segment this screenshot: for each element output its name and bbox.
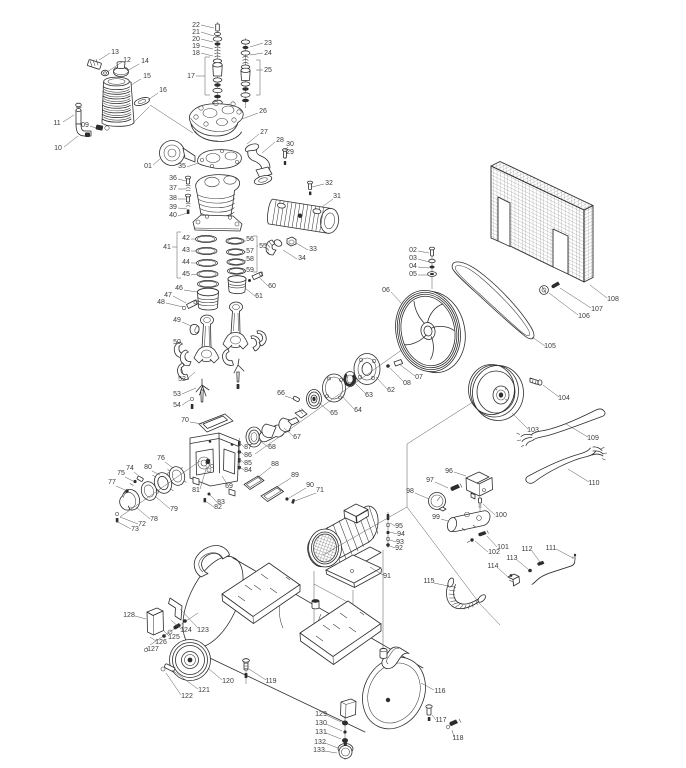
svg-text:19: 19 xyxy=(192,43,200,50)
svg-text:126: 126 xyxy=(155,639,167,646)
svg-text:94: 94 xyxy=(397,531,405,538)
svg-text:42: 42 xyxy=(182,235,190,242)
svg-text:124: 124 xyxy=(180,627,192,634)
svg-text:04: 04 xyxy=(409,263,417,270)
svg-text:78: 78 xyxy=(150,516,158,523)
svg-text:70: 70 xyxy=(181,417,189,424)
svg-text:92: 92 xyxy=(395,545,403,552)
svg-text:24: 24 xyxy=(264,50,272,57)
svg-text:29: 29 xyxy=(286,149,294,156)
svg-text:56: 56 xyxy=(246,236,254,243)
svg-text:66: 66 xyxy=(277,390,285,397)
svg-text:82: 82 xyxy=(214,504,222,511)
svg-text:128: 128 xyxy=(123,612,135,619)
svg-text:49: 49 xyxy=(173,317,181,324)
svg-text:121: 121 xyxy=(198,687,210,694)
svg-text:80: 80 xyxy=(144,464,152,471)
svg-text:60: 60 xyxy=(268,283,276,290)
svg-text:65: 65 xyxy=(330,410,338,417)
svg-text:40: 40 xyxy=(169,212,177,219)
svg-text:47: 47 xyxy=(164,292,172,299)
svg-text:28: 28 xyxy=(276,137,284,144)
svg-text:48: 48 xyxy=(157,299,165,306)
svg-text:44: 44 xyxy=(182,259,190,266)
svg-text:91: 91 xyxy=(383,573,391,580)
svg-text:31: 31 xyxy=(333,193,341,200)
svg-text:07: 07 xyxy=(415,374,423,381)
svg-text:34: 34 xyxy=(298,255,306,262)
svg-text:67: 67 xyxy=(293,434,301,441)
svg-text:57: 57 xyxy=(246,248,254,255)
svg-text:03: 03 xyxy=(409,255,417,262)
svg-text:27: 27 xyxy=(260,129,268,136)
svg-text:86: 86 xyxy=(244,452,252,459)
svg-text:68: 68 xyxy=(268,444,276,451)
svg-text:119: 119 xyxy=(265,678,276,685)
svg-text:103: 103 xyxy=(527,427,539,434)
svg-text:120: 120 xyxy=(222,678,234,685)
svg-text:22: 22 xyxy=(192,22,200,29)
svg-text:123: 123 xyxy=(197,627,209,634)
svg-text:129: 129 xyxy=(315,711,327,718)
svg-text:133: 133 xyxy=(313,747,325,754)
svg-text:52: 52 xyxy=(178,376,186,383)
svg-text:104: 104 xyxy=(558,395,570,402)
svg-text:43: 43 xyxy=(182,247,190,254)
svg-text:23: 23 xyxy=(264,40,272,47)
svg-text:55: 55 xyxy=(259,243,267,250)
svg-text:69: 69 xyxy=(225,483,233,490)
svg-text:99: 99 xyxy=(432,514,440,521)
svg-text:131: 131 xyxy=(315,729,327,736)
svg-text:98: 98 xyxy=(406,488,414,495)
svg-text:36: 36 xyxy=(169,175,177,182)
svg-text:95: 95 xyxy=(395,523,403,530)
svg-text:110: 110 xyxy=(588,480,599,487)
svg-text:71: 71 xyxy=(316,487,324,494)
svg-text:05: 05 xyxy=(409,271,417,278)
svg-text:01: 01 xyxy=(144,163,152,170)
svg-text:35: 35 xyxy=(178,163,186,170)
svg-text:109: 109 xyxy=(587,435,599,442)
svg-text:72: 72 xyxy=(138,521,146,528)
svg-text:77: 77 xyxy=(108,479,116,486)
svg-text:45: 45 xyxy=(182,271,190,278)
svg-text:58: 58 xyxy=(246,256,254,263)
svg-text:15: 15 xyxy=(143,73,151,80)
svg-text:75: 75 xyxy=(117,470,125,477)
svg-text:111: 111 xyxy=(546,545,557,552)
svg-text:97: 97 xyxy=(426,477,434,484)
svg-text:74: 74 xyxy=(126,465,134,472)
svg-text:85: 85 xyxy=(244,460,252,467)
svg-text:06: 06 xyxy=(382,287,390,294)
svg-text:79: 79 xyxy=(170,506,178,513)
svg-text:107: 107 xyxy=(591,306,603,313)
svg-text:09: 09 xyxy=(81,122,89,129)
svg-text:26: 26 xyxy=(259,108,267,115)
svg-text:106: 106 xyxy=(578,313,590,320)
svg-text:11: 11 xyxy=(53,120,60,127)
svg-text:16: 16 xyxy=(159,87,167,94)
svg-text:112: 112 xyxy=(521,546,532,553)
svg-text:12: 12 xyxy=(123,57,131,64)
svg-text:18: 18 xyxy=(192,50,200,57)
svg-text:127: 127 xyxy=(147,646,159,653)
svg-text:63: 63 xyxy=(365,392,373,399)
svg-text:116: 116 xyxy=(434,688,445,695)
svg-text:88: 88 xyxy=(271,461,279,468)
svg-text:122: 122 xyxy=(181,693,193,700)
svg-text:73: 73 xyxy=(131,526,139,533)
svg-text:20: 20 xyxy=(192,36,200,43)
svg-text:13: 13 xyxy=(111,49,119,56)
svg-text:87: 87 xyxy=(244,444,252,451)
svg-text:08: 08 xyxy=(403,380,411,387)
svg-text:100: 100 xyxy=(495,512,507,519)
svg-text:14: 14 xyxy=(141,58,149,65)
svg-text:114: 114 xyxy=(487,563,498,570)
svg-text:115: 115 xyxy=(423,578,434,585)
svg-text:64: 64 xyxy=(354,407,362,414)
svg-text:84: 84 xyxy=(244,467,252,474)
svg-text:105: 105 xyxy=(544,343,556,350)
svg-text:96: 96 xyxy=(445,468,453,475)
svg-text:17: 17 xyxy=(187,73,195,80)
svg-text:41: 41 xyxy=(163,244,171,251)
svg-text:81: 81 xyxy=(192,487,200,494)
svg-text:54: 54 xyxy=(173,402,181,409)
svg-text:61: 61 xyxy=(255,293,263,300)
svg-text:132: 132 xyxy=(314,739,326,746)
svg-text:39: 39 xyxy=(169,204,177,211)
svg-text:50: 50 xyxy=(173,339,181,346)
svg-text:130: 130 xyxy=(315,720,327,727)
svg-text:102: 102 xyxy=(488,549,500,556)
svg-text:89: 89 xyxy=(291,472,299,479)
svg-text:02: 02 xyxy=(409,247,417,254)
svg-text:113: 113 xyxy=(506,555,517,562)
svg-text:10: 10 xyxy=(54,145,62,152)
svg-text:33: 33 xyxy=(309,246,317,253)
svg-text:108: 108 xyxy=(607,296,619,303)
svg-text:25: 25 xyxy=(264,67,272,74)
svg-text:125: 125 xyxy=(168,634,180,641)
svg-text:59: 59 xyxy=(246,267,254,274)
svg-text:30: 30 xyxy=(286,141,294,148)
svg-text:90: 90 xyxy=(306,482,314,489)
svg-text:53: 53 xyxy=(173,391,181,398)
svg-text:46: 46 xyxy=(175,285,183,292)
svg-text:62: 62 xyxy=(387,387,395,394)
svg-text:37: 37 xyxy=(169,185,177,192)
svg-text:118: 118 xyxy=(452,735,463,742)
svg-text:38: 38 xyxy=(169,195,177,202)
svg-text:32: 32 xyxy=(325,180,333,187)
svg-text:117: 117 xyxy=(435,717,446,724)
svg-text:21: 21 xyxy=(192,29,200,36)
svg-text:76: 76 xyxy=(157,455,165,462)
